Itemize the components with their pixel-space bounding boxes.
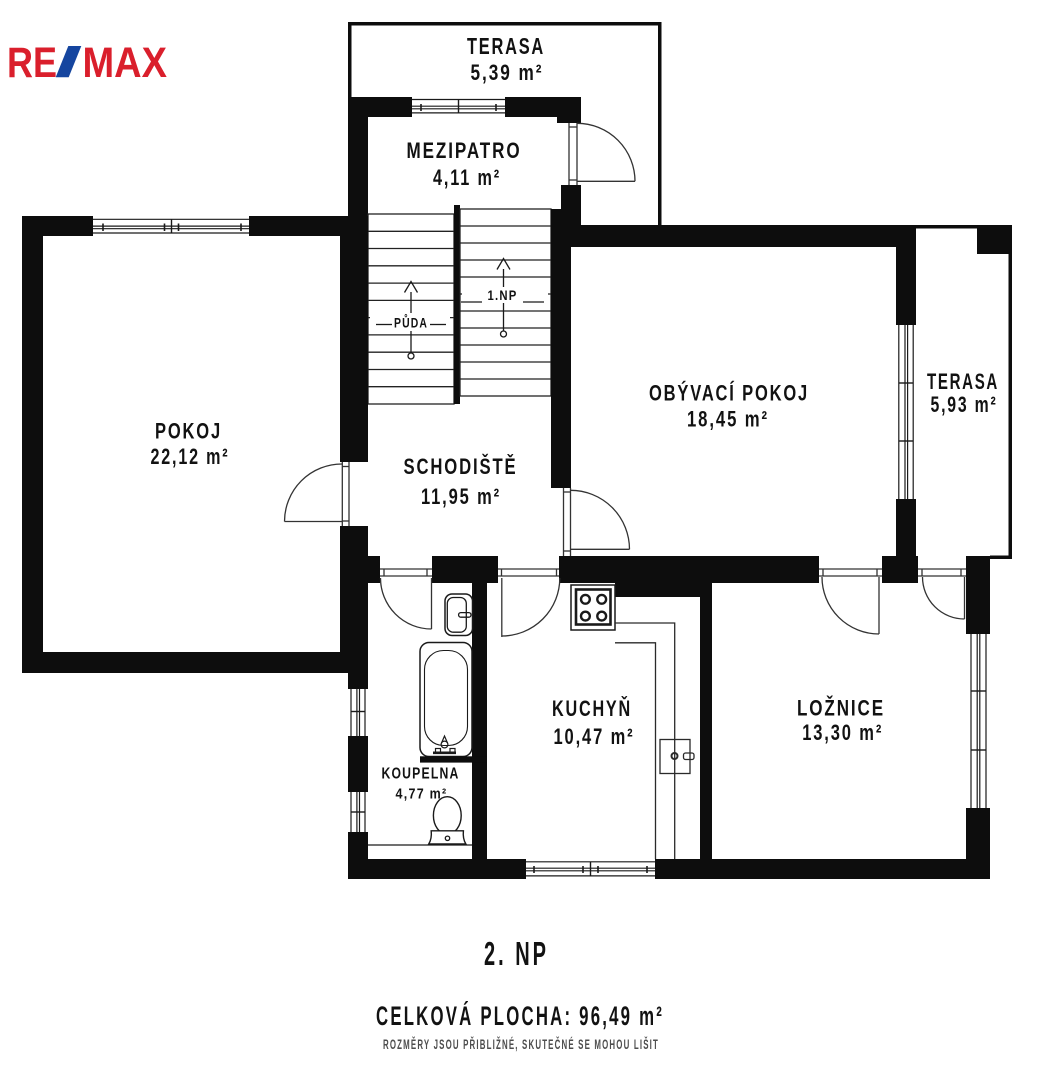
svg-text:KOUPELNA: KOUPELNA xyxy=(382,766,460,783)
svg-text:2. NP: 2. NP xyxy=(484,936,549,973)
svg-text:TERASA: TERASA xyxy=(467,33,545,59)
svg-text:18,45 m²: 18,45 m² xyxy=(687,407,769,432)
svg-text:POKOJ: POKOJ xyxy=(155,419,222,444)
svg-text:MEZIPATRO: MEZIPATRO xyxy=(407,138,522,163)
svg-text:KUCHYŇ: KUCHYŇ xyxy=(552,696,632,721)
svg-text:22,12 m²: 22,12 m² xyxy=(151,444,230,469)
svg-text:4,77 m²: 4,77 m² xyxy=(396,786,448,802)
svg-text:10,47 m²: 10,47 m² xyxy=(554,724,635,749)
svg-text:CELKOVÁ PLOCHA: 96,49 m²: CELKOVÁ PLOCHA: 96,49 m² xyxy=(376,1001,664,1031)
svg-text:RE: RE xyxy=(7,40,57,87)
svg-text:OBÝVACÍ POKOJ: OBÝVACÍ POKOJ xyxy=(649,381,809,406)
svg-text:5,39 m²: 5,39 m² xyxy=(471,60,544,85)
svg-text:SCHODIŠTĚ: SCHODIŠTĚ xyxy=(404,454,518,479)
svg-text:13,30 m²: 13,30 m² xyxy=(802,720,883,745)
svg-text:4,11 m²: 4,11 m² xyxy=(433,165,501,190)
svg-text:LOŽNICE: LOŽNICE xyxy=(797,696,885,721)
svg-text:TERASA: TERASA xyxy=(927,369,999,394)
svg-text:5,93 m²: 5,93 m² xyxy=(931,392,998,417)
svg-text:ROZMĚRY JSOU PŘIBLIŽNÉ, SKUTEČ: ROZMĚRY JSOU PŘIBLIŽNÉ, SKUTEČNÉ SE MOHO… xyxy=(383,1037,659,1052)
svg-text:11,95 m²: 11,95 m² xyxy=(421,484,501,509)
svg-text:MAX: MAX xyxy=(83,40,168,87)
svg-text:1.NP: 1.NP xyxy=(488,287,518,303)
svg-text:PŮDA: PŮDA xyxy=(394,313,428,331)
